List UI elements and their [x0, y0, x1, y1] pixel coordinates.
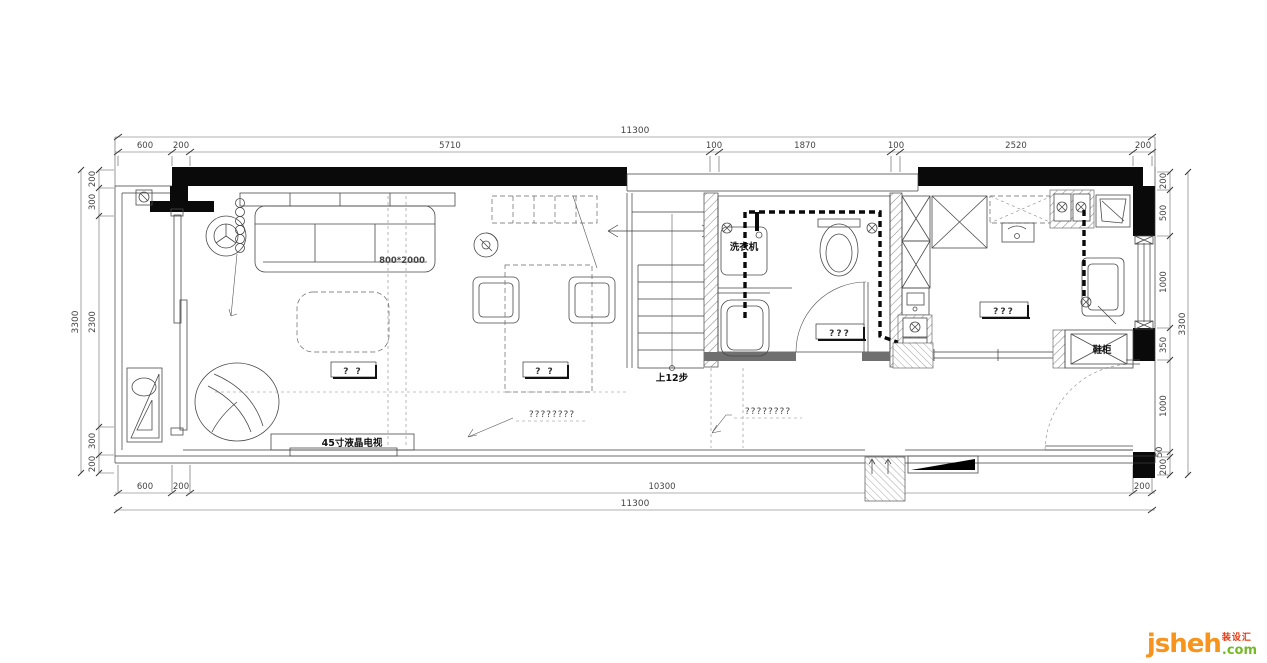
dim-left-2300: 2300: [88, 311, 98, 333]
dim-top-200b: 200: [1135, 141, 1151, 151]
dim-right-50: 50: [1155, 447, 1165, 458]
dim-right-1000b: 1000: [1159, 395, 1169, 417]
lounge-chair: [195, 363, 279, 441]
balcony: [127, 190, 187, 442]
bathroom: 洗衣机 ???: [704, 193, 911, 367]
kitchen: ??? 鞋柜: [893, 190, 1133, 368]
living-table-tag: ? ?: [331, 362, 377, 378]
dim-bottom-10300: 10300: [648, 482, 675, 492]
dim-top-600: 600: [137, 141, 153, 151]
floor-plan-page: 11300 600 200 5710 100 1870 100 2520 200…: [0, 0, 1267, 663]
dim-left-300a: 300: [88, 194, 98, 210]
bath-note-label: ???: [829, 329, 851, 339]
dim-top-2520: 2520: [1005, 141, 1027, 151]
dim-top-200a: 200: [173, 141, 189, 151]
dim-top-100b: 100: [888, 141, 904, 151]
floor-note-a-label: ????????: [529, 410, 575, 420]
living-room: 45寸液晶电视 ? ? 800*2000: [195, 193, 455, 456]
floor-plan-canvas: 11300 600 200 5710 100 1870 100 2520 200…: [0, 0, 1267, 663]
dim-right-200a: 200: [1159, 173, 1169, 189]
kitchen-note-label: ???: [993, 307, 1015, 317]
dim-bottom-total: 11300: [621, 499, 650, 509]
logo-suffix: 装设汇 .com: [1222, 634, 1257, 657]
floor-note-b-label: ????????: [745, 407, 791, 417]
shoe-cabinet: 鞋柜: [1053, 330, 1133, 368]
shoe-cabinet-label: 鞋柜: [1092, 344, 1112, 356]
dim-left-200a: 200: [88, 171, 98, 187]
dimension-chain-right: 3300 200 500 1000 350 1000 50 200: [1155, 169, 1191, 478]
right-wall-window: [1135, 236, 1153, 329]
shower-tray: [721, 300, 769, 356]
dim-top-1870: 1870: [794, 141, 816, 151]
dim-top-total: 11300: [621, 126, 650, 136]
curtain-symbol: [229, 199, 245, 317]
dim-bottom-600: 600: [137, 482, 153, 492]
dim-right-500: 500: [1159, 205, 1169, 221]
dim-left-total: 3300: [71, 310, 81, 333]
dim-right-total: 3300: [1178, 312, 1188, 335]
dimension-chain-bottom: 600 200 10300 200 11300: [114, 465, 1156, 513]
living-table-label: ? ?: [343, 367, 363, 377]
dimension-chain-left: 3300 200 300 2300 300 200: [71, 167, 114, 476]
bath-note-tag: ???: [816, 324, 866, 340]
dim-top-100a: 100: [706, 141, 722, 151]
dim-right-350: 350: [1159, 337, 1169, 353]
bathroom-door: [796, 282, 868, 352]
dim-right-1000a: 1000: [1159, 271, 1169, 293]
floor-note-a: ????????: [468, 410, 588, 437]
sofa-size-label: 800*2000: [379, 256, 425, 266]
tv-label: 45寸液晶电视: [322, 437, 383, 449]
dim-left-300b: 300: [88, 433, 98, 449]
logo-tagline: 装设汇: [1222, 634, 1252, 643]
dim-left-200b: 200: [88, 456, 98, 472]
exterior-walls: [115, 167, 1155, 478]
stairs: 上12步: [608, 212, 712, 384]
dim-right-200b: 200: [1159, 459, 1169, 475]
tv-cabinet: 45寸液晶电视: [271, 434, 414, 456]
site-logo[interactable]: jsheh 装设汇 .com: [1147, 631, 1257, 657]
dining-table-tag: ? ?: [523, 362, 569, 378]
toilet: [818, 219, 860, 276]
dining-table-label: ? ?: [535, 367, 555, 377]
kitchen-note-tag: ???: [980, 302, 1030, 318]
entry-door: [1045, 360, 1140, 450]
wall-basin: [1082, 258, 1124, 324]
dim-bottom-200a: 200: [173, 482, 189, 492]
dim-bottom-200b: 200: [1134, 482, 1150, 492]
reference-lines: [215, 196, 743, 448]
logo-name: jsheh: [1147, 631, 1221, 657]
dining-area: ? ?: [473, 196, 615, 392]
logo-tld: .com: [1222, 644, 1257, 657]
stairs-label: 上12步: [656, 372, 689, 384]
dim-top-5710: 5710: [439, 141, 461, 151]
floor-note-b: ????????: [712, 407, 802, 433]
